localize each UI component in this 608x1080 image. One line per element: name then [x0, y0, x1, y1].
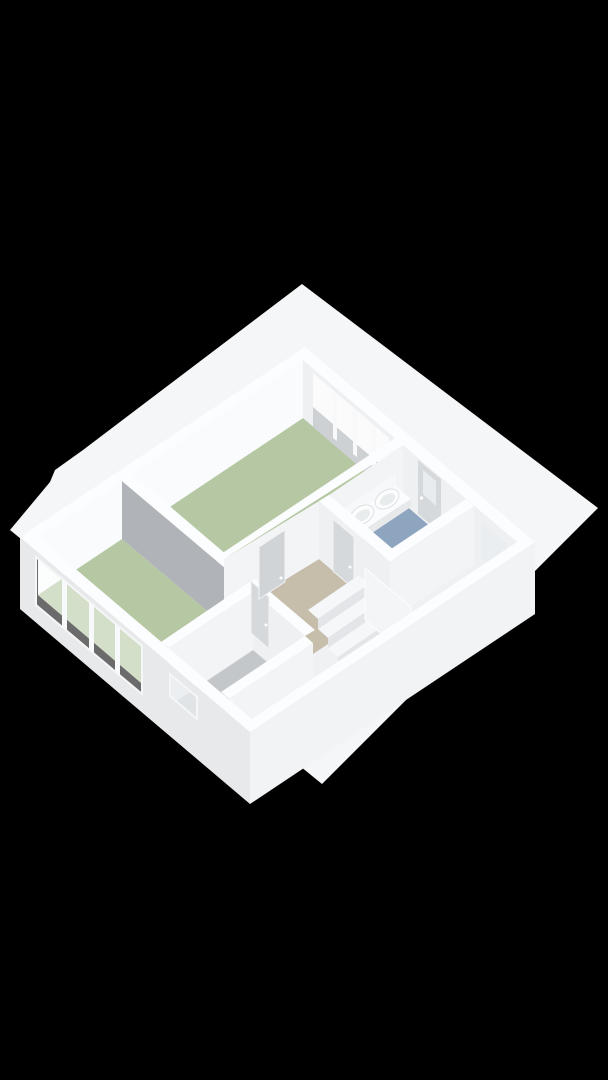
sw-window-mullion-3: [115, 624, 120, 676]
floorplan-3d-svg: [0, 0, 608, 1080]
sw-window-mullion-2: [89, 602, 94, 654]
bedroom-door-handle: [280, 577, 283, 580]
bathroom-inner-door-handle: [349, 566, 352, 569]
bathroom-door-handle: [420, 496, 423, 499]
shower-door-handle: [265, 624, 268, 627]
ne-window-mullion-2: [353, 408, 357, 457]
floorplan-render-canvas: [0, 0, 608, 1080]
ne-window-mullion-1: [333, 392, 337, 441]
sw-window-mullion-1: [62, 579, 67, 631]
